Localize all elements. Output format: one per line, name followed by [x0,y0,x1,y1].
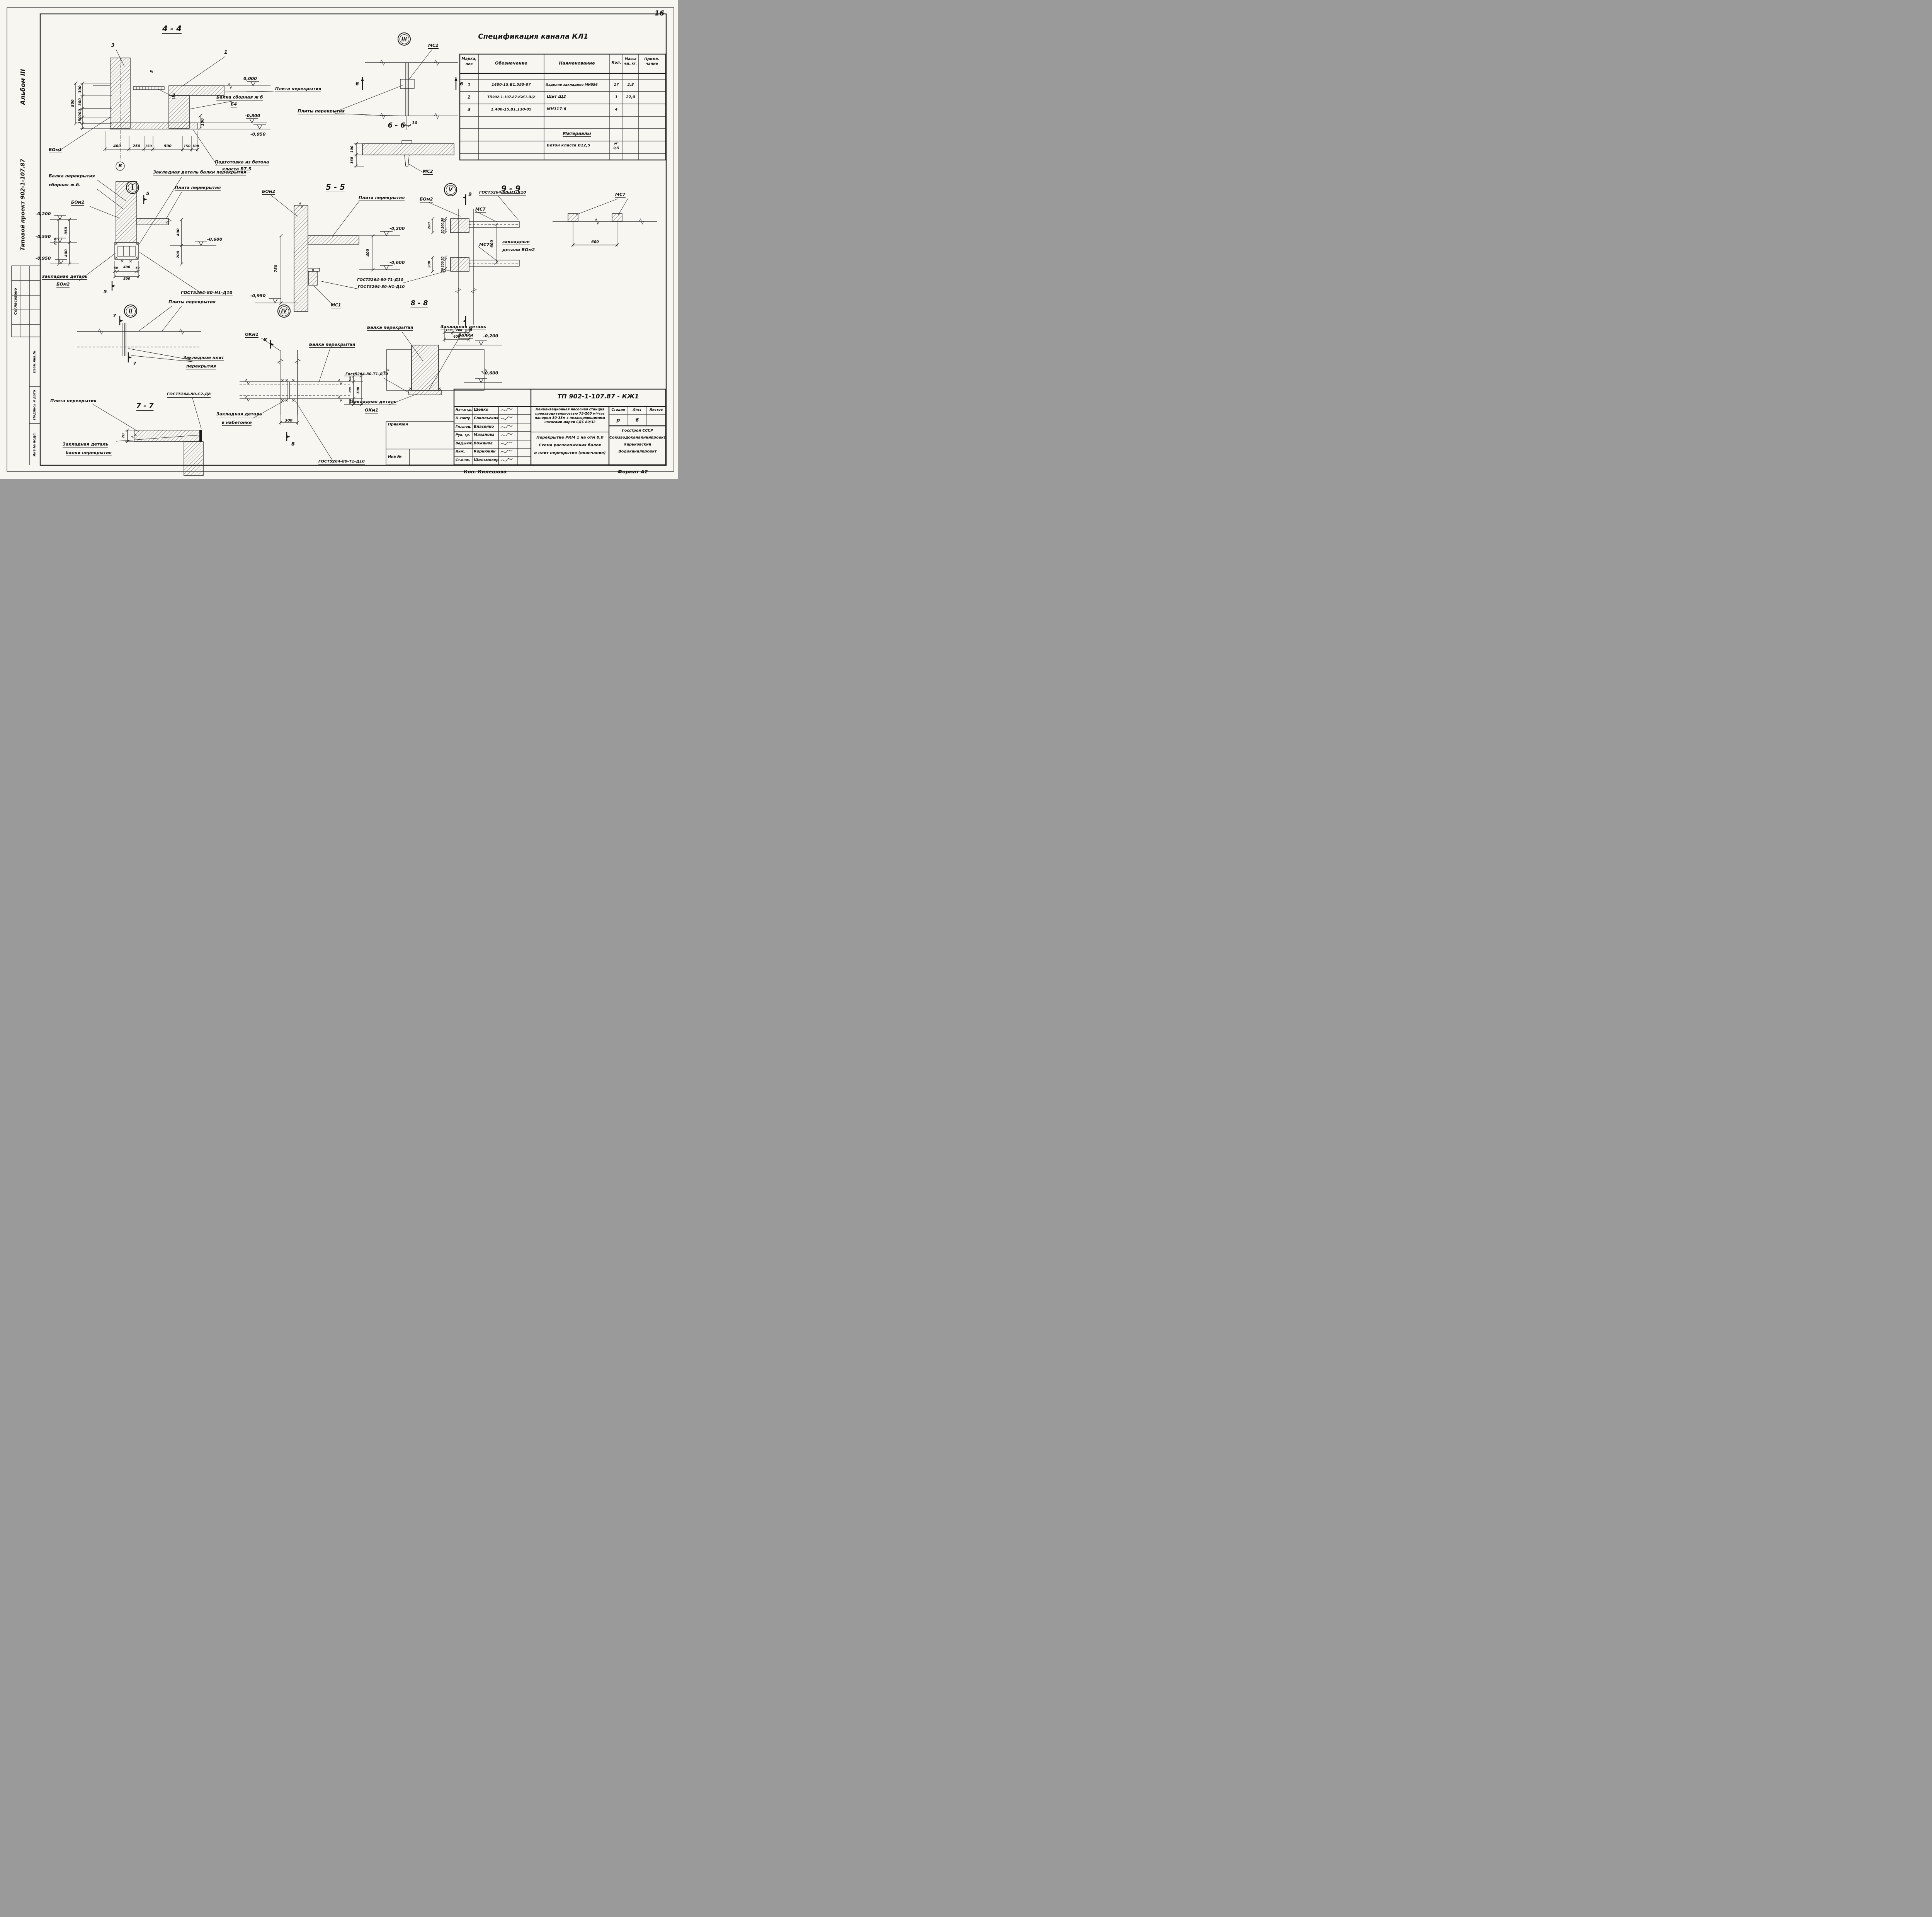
dim-750: 750 [274,265,278,272]
node-IV-marker: IV [277,304,291,318]
embed-bottom-label: Закладная деталь [42,274,87,280]
section-mark-7: 7 [113,313,116,318]
dim-400: 400 [65,249,68,257]
spec-title: Спецификация канала КЛ1 [478,33,588,41]
tb-sheet-title-line: Схема расположения балок [539,444,601,448]
spec-header-note2: чание [646,62,658,66]
spec-row-qty: 4 [615,108,618,112]
elevation-0950: -0,950 [36,256,51,261]
dim-500: 500 [123,277,130,281]
dim-250: 250 [133,145,140,148]
bom1-label: БОм1 [49,148,62,153]
section-6-6-title: 6 - 6 [388,122,405,130]
spec-row-name: Щит Щ2 [547,95,566,99]
callout-3: 3 [111,43,115,48]
tb-sheet-title-line: и плит перекрытия (окончание) [534,451,605,456]
node-V-marker: V [444,183,457,196]
dim-400: 400 [366,249,370,257]
embed-label-2: балки [458,333,473,338]
beam-label-2: сборная ж.б. [49,183,81,188]
dim-200: 200 [428,222,432,229]
slab-label: Плита перекрытия [175,185,221,191]
embed-bottom-label-2: БОм2 [56,282,70,287]
node-I-marker: I [126,181,139,194]
tb-name: Шильмовер [474,458,499,462]
dim-600: 600 [591,240,599,244]
tb-project-line: производительностью 75-200 м³/час [535,412,605,416]
tb-project-line: Канализационная насосная станция [536,408,604,412]
okm1-label: ОКм1 [245,332,259,338]
dim-150: 150 [145,145,152,148]
elevation-0200: -0,200 [483,334,498,338]
spec-material-name: Бетон класса В12,5 [547,144,590,148]
slabs-label: Плиты перекрытия [168,300,216,305]
spec-header-mark2: поз [466,63,473,66]
embed-details-label: закладные [502,240,530,245]
tb-project-line: насосами марки СДС 80/32 [544,421,595,424]
dim-150: 150 [184,145,190,148]
embed-label-2: балки перекрытия [66,451,112,456]
tb-stage-header: Стадия [611,408,625,412]
spec-row-name: Изделие закладное МН556 [546,83,598,87]
spec-header-name: Наименование [559,61,595,66]
spec-row-name: МН117-6 [547,107,566,112]
dim-50: 50 [441,268,444,272]
embed-label-2: в набетонке [222,420,252,426]
bom2-label: БОм2 [420,197,433,202]
dim-400: 400 [113,145,121,148]
elevation-0600: -0,600 [483,371,498,376]
axis-mark-B: В [118,163,122,168]
section-5-5-drawing [255,195,400,311]
dim-500: 500 [357,387,361,394]
spec-materials-header: Материалы [563,131,591,137]
spec-row-qty: 1 [615,95,618,99]
tb-stage-value: р [617,417,620,422]
node-II-marker: II [124,304,137,318]
gost-weld-label: ГОСТ5264-80-Н1-Д10 [358,285,405,290]
drawing-linework [0,0,678,479]
section-mark-8: 8 [264,337,267,342]
spec-row-mark: 1 [468,83,471,87]
callout-2: 2 [172,93,175,99]
node-III-numeral: III [401,36,407,42]
section-9-9-title: 9 - 9 [501,185,520,194]
dim-10: 10 [412,121,417,126]
spec-material-unit: м³ [614,142,619,146]
spec-row-designation: 1.400-15.В1.130-05 [491,108,531,112]
spec-header-mark: Марка, [461,57,476,61]
section-V-drawing [402,194,519,342]
dim-200: 200 [177,251,180,259]
gost-weld-label: ГОСТ5264-80-С2-Д8 [167,393,211,398]
embed-label: Закладные плит [183,356,224,361]
mc7-label: МС7 [479,243,490,248]
section-II-drawing [77,306,201,362]
tb-org-line: Госстрой СССР [622,429,653,433]
beam-label: Балка сборная ж б [216,95,263,100]
dim-300: 300 [349,387,352,393]
dim-150: 150 [78,116,82,124]
margin-approved-label: Согласовано [14,288,18,315]
embed-label: Закладная деталь [216,412,262,417]
dim-200: 200 [441,223,444,229]
tb-name: Шейко [474,408,488,412]
slab-label: Плита перекрытия [359,196,405,201]
section-5-5-title: 5 - 5 [326,183,345,192]
dim-50: 50 [136,267,139,270]
margin-album-label: Альбом III [20,69,27,105]
tb-role: Инж. [456,450,465,454]
section-mark-5: 5 [146,191,150,196]
spec-row-mark: 3 [468,107,471,112]
beam-label: Балка перекрытия [309,342,355,348]
tb-inv-label: Инв № [388,455,401,459]
elevation-0550: -0,550 [36,235,51,239]
section-6-6-drawing [354,141,454,173]
spec-material-qty: 0,5 [613,147,619,150]
dim-50: 50 [114,267,118,270]
spec-row-mark: 2 [468,95,471,100]
margin-sign-label: Подпись и дата [33,390,37,420]
tb-name: Власенко [474,425,494,429]
dim-300: 300 [285,419,293,423]
section-8-8-title: 8 - 8 [410,300,428,308]
dim-300: 300 [78,85,82,93]
margin-vzam-label: Взам.инв.№ [33,350,37,373]
section-mark-8: 8 [291,441,295,446]
section-7-7-title: 7 - 7 [136,403,153,411]
dim-500: 500 [164,145,172,148]
section-mark-5: 5 [104,289,107,294]
section-IV-drawing [240,338,363,461]
section-4-4-drawing [58,49,274,170]
tb-sheets-header: Листов [650,408,663,412]
spec-row-designation: 1400-15.В1.550-07 [492,83,531,87]
beam-label: Балка перекрытия [49,174,95,179]
tb-org-line: Харьковский [624,443,651,447]
tb-role: Гл.спец. [456,425,471,429]
dim-350: 350 [65,227,68,235]
embed-okm1-label: Закладная деталь [351,400,396,405]
mc7-label: МС7 [615,192,626,198]
tb-privyazan-label: Привязан [388,423,408,427]
elevation-0200: -0,200 [389,226,405,231]
page-number: 16 [655,10,664,17]
tb-role: Рук. гр. [456,434,470,437]
tb-name: Мазалова [474,433,495,437]
dim-70: 70 [122,433,126,438]
spec-header-mass2: ед.,кг. [624,62,637,66]
drawing-sheet: 16 Альбом III Типовой проект 902-1-107.8… [0,0,678,479]
node-II-numeral: II [129,308,133,314]
tb-name: Вожанов [474,442,493,446]
elevation-0800: -0,800 [245,114,260,118]
elevation-0000: 0,000 [243,77,257,81]
spec-header-designation: Обозначение [495,61,527,66]
beam-label: Балка перекрытия [367,325,413,331]
embed-label: Закладная деталь [63,442,108,447]
section-mark-6: 6 [460,81,463,86]
section-III-drawing [335,49,458,130]
section-mark-9: 9 [468,192,472,197]
elevation-0600: -0,600 [207,237,222,242]
section-8-8-drawing [383,332,502,405]
dim-100: 100 [351,146,354,153]
gost-weld-label: ГОСТ5264-80-Т1-Д10 [318,460,365,465]
bom2-label: БОм2 [262,189,275,195]
node-III-marker: III [398,32,411,46]
gost-weld-label: ГОСТ5264-80-Т1-Д10 [357,278,403,283]
mc7-label: МС7 [475,207,486,213]
dim-200: 200 [428,261,432,268]
slabs-label: Плиты перекрытия [298,109,345,114]
mc2-label: МС2 [428,43,439,49]
dim-100: 100 [201,118,205,126]
node-I-numeral: I [132,185,134,191]
signature-scribbles [501,408,512,461]
copy-label: Коп. Килешова [464,469,507,474]
dim-200: 200 [441,261,444,267]
prep-label: Подготовка из бетона [215,160,269,165]
callout-1: 1 [224,49,228,55]
embed-label: Закладная деталь [440,325,486,330]
dim-50: 50 [441,257,444,260]
spec-header-mass: Масса [625,58,636,61]
dim-400: 400 [123,266,130,269]
dim-100: 100 [192,145,199,148]
tb-org-line: Водоканалпроект [618,450,656,454]
dim-50: 50 [441,230,444,233]
mc2-label: МС2 [423,169,433,175]
tb-org-line: Союзводоканалниипроект [609,436,666,440]
beam-mark-label: Б4 [231,102,237,107]
section-4-4-title: 4 - 4 [162,25,182,34]
spec-row-mass: 22,0 [626,95,635,99]
section-9-9-drawing [553,199,657,247]
spec-header-qty: Кол. [612,61,621,65]
spec-row-qty: 17 [614,83,619,87]
gost-weld-label: ГОСТ5264-80-Н1-Д10 [181,291,233,296]
dim-800: 800 [71,99,75,107]
elevation-0950: -0,950 [250,132,265,137]
beam-mark-label: БОм2 [71,200,84,206]
dim-750: 750 [54,238,58,245]
spec-row-designation: ТП902-1-107.87-КЖ1.Щ2 [487,96,535,99]
node-V-numeral: V [449,187,452,193]
margin-project-label: Типовой проект 902-1-107.87 [20,159,26,251]
dim-400: 400 [177,228,180,236]
mc1-label: МС1 [331,303,341,308]
elevation-0950: -0,950 [250,294,265,298]
dim-600: 600 [490,240,494,248]
dim-50: 50 [441,218,444,222]
tb-role: Ст.инж. [456,459,470,462]
tb-name: Корнюкин [474,450,496,454]
tb-sheet-header: Лист [633,408,642,412]
document-number: ТП 902-1-107.87 - КЖ1 [557,393,639,400]
dim-200: 200 [78,109,82,117]
dim-160: 160 [351,157,354,164]
spec-row-mass: 2,8 [628,83,634,87]
embed-details-label-2: детали БОм2 [502,248,535,253]
tb-role: Нач.отд. [456,408,472,412]
dim-300: 300 [78,98,82,106]
tb-sheet-title-line: Перекрытие РКМ 1 на отм 0,0 [536,436,604,440]
section-mark-7: 7 [133,361,136,366]
gost-weld-label: Гост5264-80-Т1-Д10 [345,373,388,377]
section-mark-6: 6 [355,81,359,86]
embed-detail-label: Закладная деталь балки перекрытия [153,170,246,175]
tb-sheet-value: 6 [636,417,639,422]
tb-project-line: напором 30-33м с незасоряющимися [535,417,605,420]
embed-okm1-label-2: ОКм1 [365,408,378,413]
elevation-0600: -0,600 [389,260,405,265]
tb-name: Сокольская [474,417,498,420]
format-label: Формат А2 [617,469,648,474]
embed-label-2: перекрытия [186,364,216,369]
elevation-0200: -0,200 [36,212,51,216]
callout-5: 5 [150,70,155,73]
node-IV-numeral: IV [281,308,287,314]
tb-role: Вед.инж. [456,442,473,446]
margin-inv-label: Инв.№ подл. [33,432,37,457]
slab-label: Плита перекрытия [275,87,321,92]
tb-role: Н контр [456,417,471,420]
slab-label: Плита перекрытия [50,399,96,404]
spec-header-note: Приме- [644,58,660,61]
